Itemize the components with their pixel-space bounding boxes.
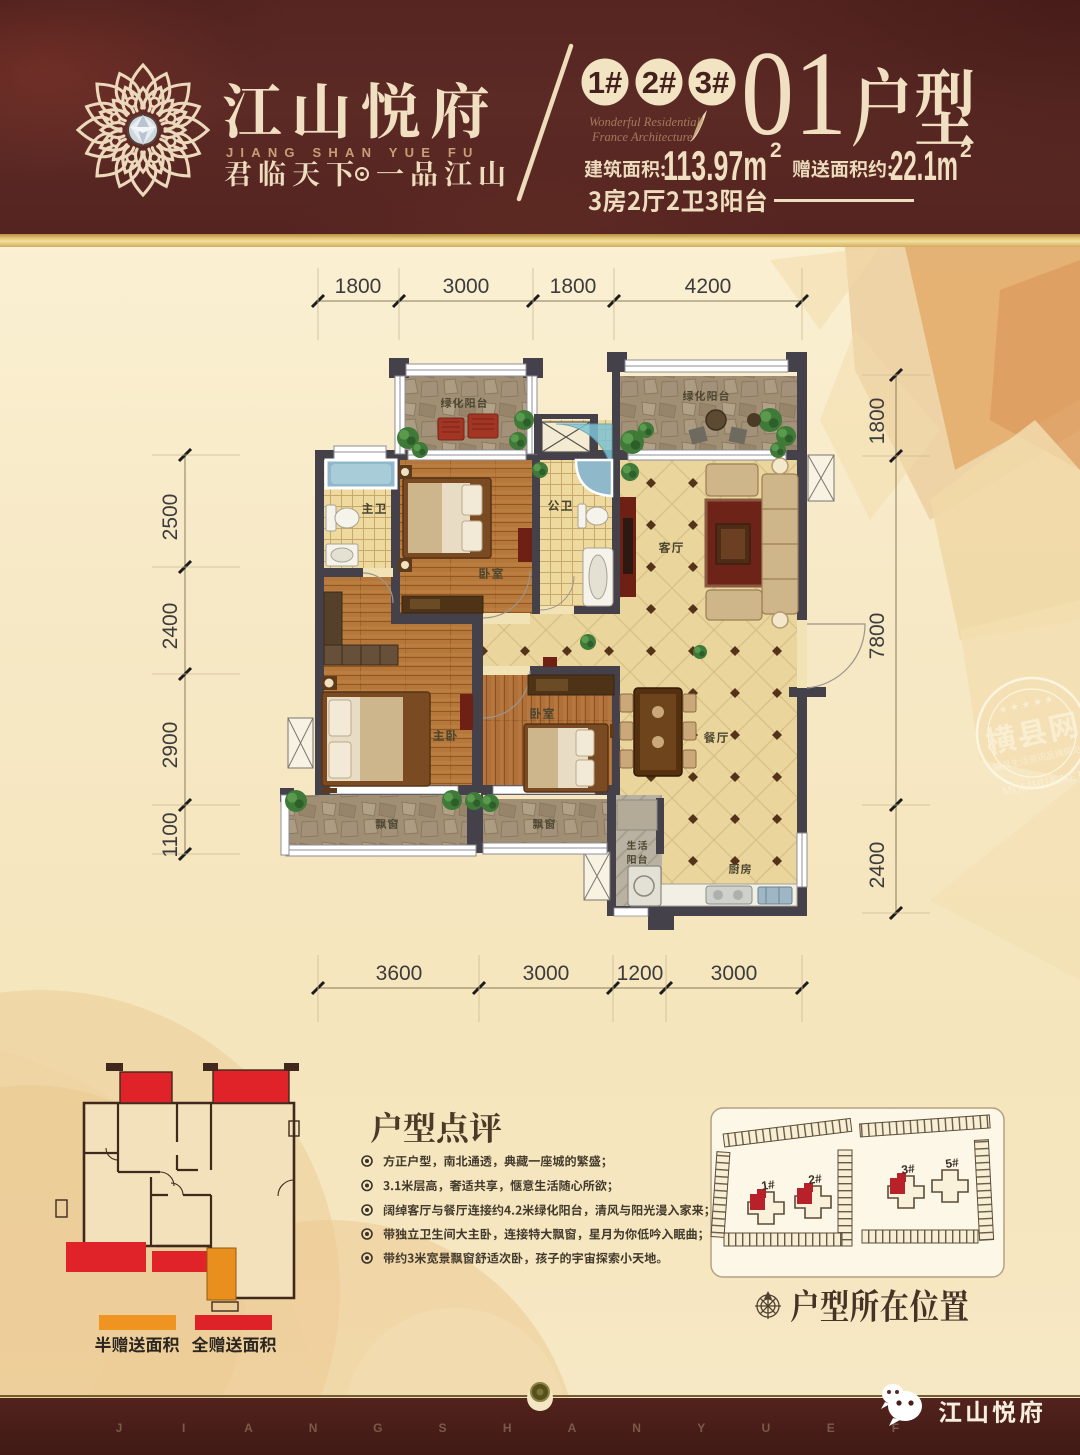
- svg-text:N: N: [309, 1421, 318, 1435]
- svg-text:S: S: [438, 1421, 446, 1435]
- svg-text:H: H: [503, 1421, 512, 1435]
- svg-text:2#: 2#: [807, 1171, 822, 1187]
- svg-text:Y: Y: [697, 1421, 705, 1435]
- svg-text:1#: 1#: [760, 1177, 775, 1193]
- svg-text:N: N: [632, 1421, 641, 1435]
- svg-text:5#: 5#: [944, 1155, 959, 1171]
- svg-text:U: U: [762, 1421, 771, 1435]
- svg-text:E: E: [827, 1421, 835, 1435]
- svg-text:3#: 3#: [900, 1161, 915, 1177]
- svg-text:J: J: [116, 1421, 123, 1435]
- svg-text:A: A: [568, 1421, 577, 1435]
- svg-text:A: A: [244, 1421, 253, 1435]
- svg-text:G: G: [373, 1421, 382, 1435]
- svg-text:I: I: [182, 1421, 185, 1435]
